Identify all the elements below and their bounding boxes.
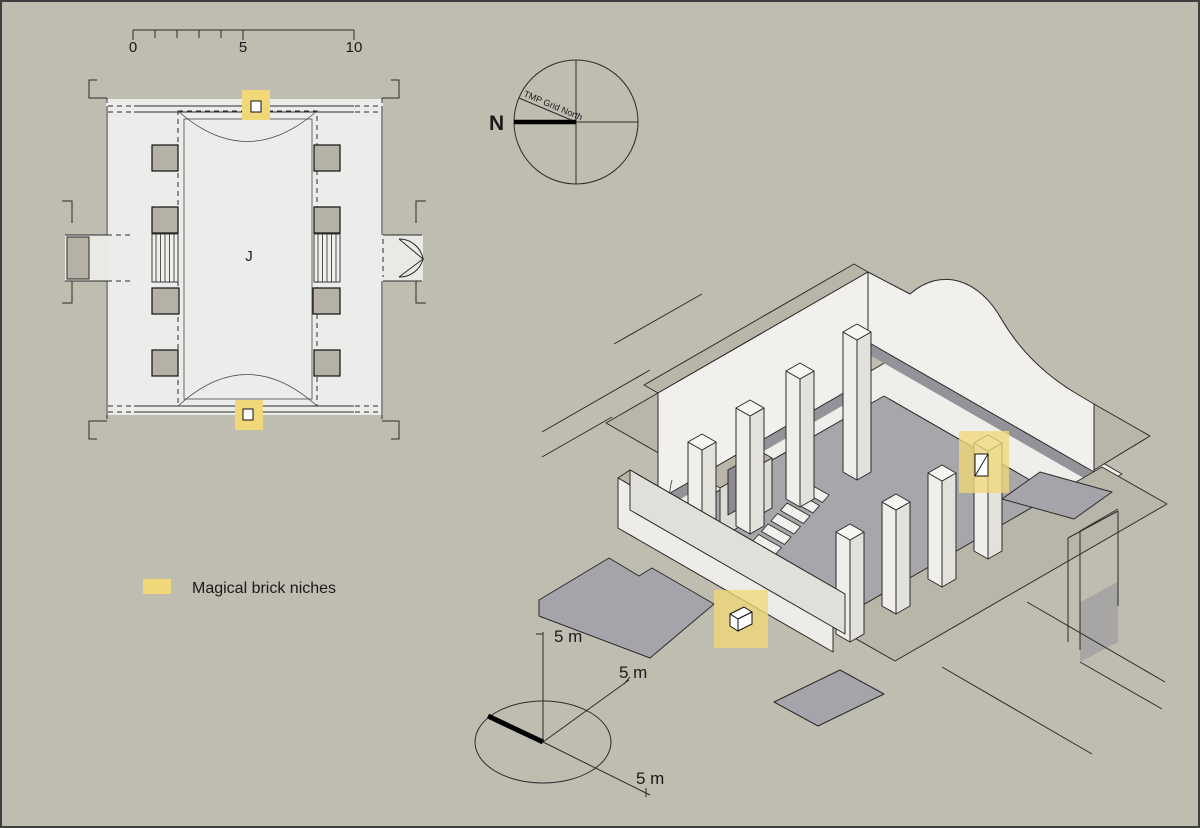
diagram-canvas: 0 5 10 N TMP Grid North: [2, 2, 1198, 826]
iso-niche-north: [959, 431, 1009, 493]
iso-niche-south: [714, 590, 768, 648]
chamber-label: J: [245, 248, 253, 265]
compass-rose: N TMP Grid North: [489, 60, 638, 184]
east-wall-cut-top: [1094, 404, 1150, 470]
grid-north-label: TMP Grid North: [522, 89, 584, 123]
scale-tick-5: 5: [239, 39, 247, 56]
plan-niche-south: [235, 400, 263, 430]
scale-bar: 0 5 10: [129, 30, 363, 56]
west-door-slab: [67, 237, 89, 279]
scale-tick-10: 10: [346, 39, 363, 56]
plan-stairs-east: [314, 234, 340, 282]
axis-up-label: 5 m: [554, 627, 582, 646]
axis-north-stub: [488, 716, 543, 742]
archaeological-diagram-page: { "scale_bar": { "tick_0": "0", "tick_5"…: [0, 0, 1200, 828]
legend-label: Magical brick niches: [192, 580, 336, 597]
scale-tick-0: 0: [129, 39, 137, 56]
floor-plan: J: [62, 80, 426, 439]
north-label: N: [489, 112, 504, 135]
plan-niche-north: [242, 90, 270, 120]
platform-south: [774, 670, 884, 726]
legend: Magical brick niches: [143, 579, 336, 597]
axis-se-label: 5 m: [636, 769, 664, 788]
axis-ne-label: 5 m: [619, 663, 647, 682]
plan-stairs-west: [152, 234, 178, 282]
legend-swatch-yellow: [143, 579, 171, 594]
